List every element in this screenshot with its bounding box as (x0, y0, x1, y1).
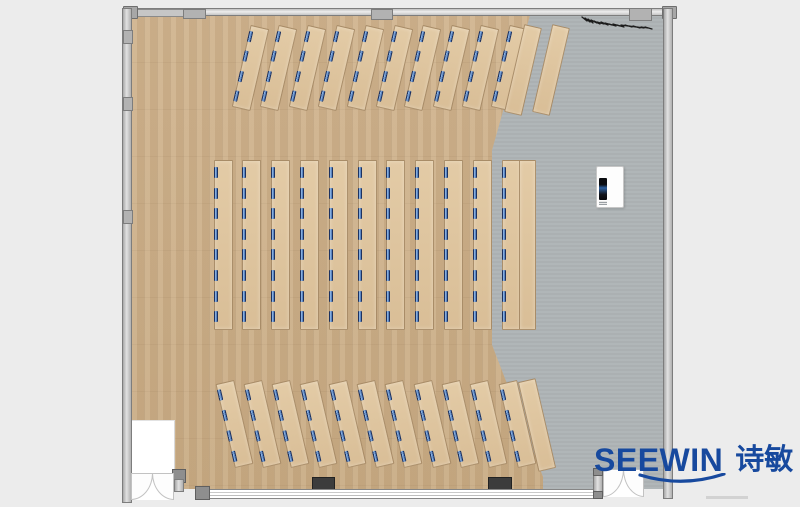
monitor-mark (444, 270, 448, 281)
monitor-mark (295, 71, 301, 83)
monitor-mark (329, 229, 333, 240)
monitor-mark (473, 270, 477, 281)
monitor-mark (242, 188, 246, 199)
monitor-mark (386, 188, 390, 199)
monitor-mark (300, 291, 304, 302)
monitor-mark (329, 208, 333, 219)
entry-door-left (131, 473, 174, 500)
monitor-mark (386, 208, 390, 219)
monitor-mark (358, 229, 362, 240)
monitor-mark (473, 208, 477, 219)
monitor-mark (311, 430, 317, 442)
monitor-mark (481, 430, 487, 442)
monitor-mark (328, 51, 334, 63)
monitor-mark (473, 311, 477, 322)
monitor-mark (271, 249, 275, 260)
monitor-mark (242, 249, 246, 260)
monitor-mark (315, 451, 321, 463)
workstation-desk (214, 160, 233, 330)
monitor-mark (419, 31, 425, 43)
monitor-mark (300, 208, 304, 219)
monitor-mark (386, 249, 390, 260)
monitor-mark (214, 249, 218, 260)
monitor-mark (242, 208, 246, 219)
monitor-mark (271, 208, 275, 219)
monitor-mark (410, 71, 416, 83)
monitor-mark (444, 229, 448, 240)
monitor-mark (415, 270, 419, 281)
wall-corner (195, 486, 210, 500)
monitor-mark (473, 167, 477, 178)
monitor-mark (358, 270, 362, 281)
logo-swoosh-icon (638, 473, 726, 486)
wall-mullion (123, 30, 133, 44)
monitor-mark (329, 270, 333, 281)
monitor-mark (476, 410, 482, 422)
monitor-mark (358, 291, 362, 302)
monitor-mark (386, 229, 390, 240)
monitor-mark (329, 291, 333, 302)
monitor-mark (502, 249, 506, 260)
monitor-mark (329, 188, 333, 199)
monitor-mark (306, 410, 312, 422)
monitor-mark (266, 71, 272, 83)
monitor-mark (300, 249, 304, 260)
monitor-mark (358, 188, 362, 199)
monitor-mark (444, 167, 448, 178)
monitor-mark (271, 167, 275, 178)
monitor-mark (275, 31, 281, 43)
monitor-mark (415, 229, 419, 240)
monitor-mark (242, 291, 246, 302)
monitor-mark (400, 451, 406, 463)
wall-mullion (183, 9, 206, 19)
workstation-desk (386, 160, 405, 330)
monitor-mark (271, 51, 277, 63)
wall-mullion (123, 210, 133, 224)
workstation-desk (415, 160, 434, 330)
workstation-desk (444, 160, 463, 330)
monitor-mark (271, 291, 275, 302)
entry-alcove (131, 420, 175, 474)
podium-screen-icon (599, 178, 607, 200)
monitor-mark (214, 270, 218, 281)
monitor-mark (386, 389, 392, 401)
right-wall (663, 8, 673, 499)
monitor-mark (214, 291, 218, 302)
wall-post (174, 479, 184, 492)
monitor-mark (386, 291, 390, 302)
monitor-mark (473, 229, 477, 240)
monitor-mark (386, 167, 390, 178)
monitor-mark (485, 451, 491, 463)
monitor-mark (300, 311, 304, 322)
monitor-mark (473, 188, 477, 199)
monitor-mark (242, 311, 246, 322)
monitor-mark (214, 311, 218, 322)
monitor-mark (358, 311, 362, 322)
monitor-mark (300, 270, 304, 281)
monitor-mark (214, 188, 218, 199)
monitor-mark (415, 311, 419, 322)
monitor-mark (386, 270, 390, 281)
workstation-desk (329, 160, 348, 330)
monitor-mark (415, 291, 419, 302)
monitor-mark (261, 90, 267, 102)
monitor-mark (271, 229, 275, 240)
monitor-mark (242, 229, 246, 240)
workstation-desk (242, 160, 261, 330)
monitor-mark (214, 167, 218, 178)
monitor-mark (473, 249, 477, 260)
monitor-mark (415, 208, 419, 219)
monitor-mark (391, 410, 397, 422)
door-hinge (593, 491, 603, 499)
monitor-mark (472, 51, 478, 63)
wall-mullion (123, 97, 133, 111)
brand-wordmark: SEEWIN (594, 444, 723, 476)
bottom-window-band (207, 489, 593, 499)
monitor-mark (300, 188, 304, 199)
monitor-mark (271, 188, 275, 199)
workstation-desk (473, 160, 492, 330)
monitor-mark (405, 90, 411, 102)
monitor-mark (444, 291, 448, 302)
monitor-mark (214, 229, 218, 240)
side-table (519, 160, 536, 330)
page-artifact (706, 496, 748, 499)
left-wall (122, 8, 132, 503)
monitor-mark (473, 291, 477, 302)
monitor-mark (329, 311, 333, 322)
monitor-mark (386, 311, 390, 322)
monitor-mark (502, 291, 506, 302)
monitor-mark (300, 229, 304, 240)
podium-vent-icon (599, 201, 607, 205)
door-leaf (152, 473, 174, 500)
monitor-mark (502, 167, 506, 178)
monitor-mark (300, 167, 304, 178)
monitor-mark (271, 311, 275, 322)
brand-logo: SEEWIN 诗敏 (594, 444, 793, 476)
monitor-mark (415, 249, 419, 260)
monitor-mark (290, 90, 296, 102)
monitor-mark (415, 167, 419, 178)
monitor-mark (502, 270, 506, 281)
monitor-mark (358, 249, 362, 260)
monitor-mark (358, 208, 362, 219)
monitor-mark (444, 188, 448, 199)
monitor-mark (443, 51, 449, 63)
monitor-mark (444, 208, 448, 219)
monitor-mark (396, 430, 402, 442)
monitor-mark (271, 270, 275, 281)
monitor-mark (444, 311, 448, 322)
plants-scribble-icon (580, 14, 655, 30)
monitor-mark (304, 31, 310, 43)
brand-chinese-name: 诗敏 (735, 446, 793, 475)
monitor-mark (329, 167, 333, 178)
monitor-mark (242, 270, 246, 281)
monitor-mark (471, 389, 477, 401)
monitor-mark (301, 389, 307, 401)
monitor-mark (448, 31, 454, 43)
monitor-mark (358, 167, 362, 178)
monitor-mark (415, 188, 419, 199)
top-wall-segment (133, 9, 185, 17)
monitor-mark (502, 208, 506, 219)
wall-mullion (371, 9, 393, 20)
workstation-desk (502, 160, 521, 330)
monitor-mark (439, 71, 445, 83)
workstation-desk (358, 160, 377, 330)
monitor-mark (502, 229, 506, 240)
monitor-mark (434, 90, 440, 102)
monitor-mark (502, 188, 506, 199)
monitor-mark (444, 249, 448, 260)
floor-plan: SEEWIN 诗敏 (0, 0, 800, 507)
monitor-mark (242, 167, 246, 178)
workstation-desk (300, 160, 319, 330)
monitor-mark (502, 311, 506, 322)
podium (596, 166, 624, 208)
monitor-mark (214, 208, 218, 219)
monitor-mark (415, 51, 421, 63)
door-leaf (131, 473, 153, 500)
workstation-desk (271, 160, 290, 330)
monitor-mark (329, 249, 333, 260)
monitor-mark (299, 51, 305, 63)
